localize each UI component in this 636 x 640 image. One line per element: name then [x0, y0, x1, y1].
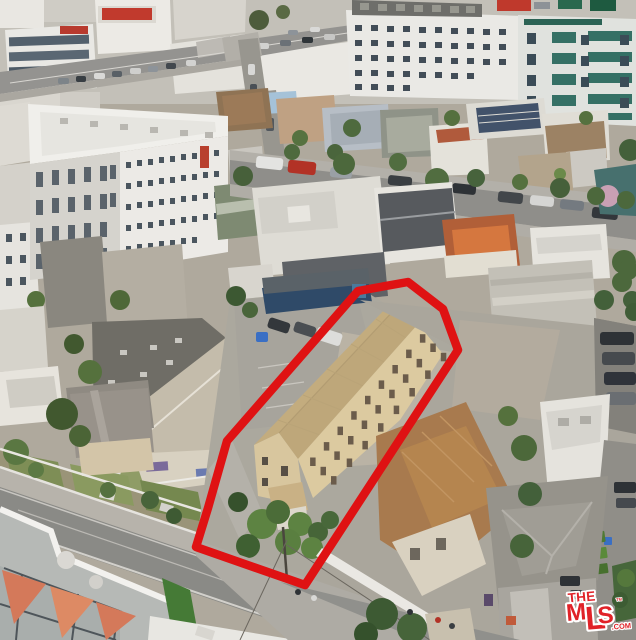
- svg-text:TM: TM: [616, 597, 623, 603]
- svg-text:.COM: .COM: [611, 621, 631, 632]
